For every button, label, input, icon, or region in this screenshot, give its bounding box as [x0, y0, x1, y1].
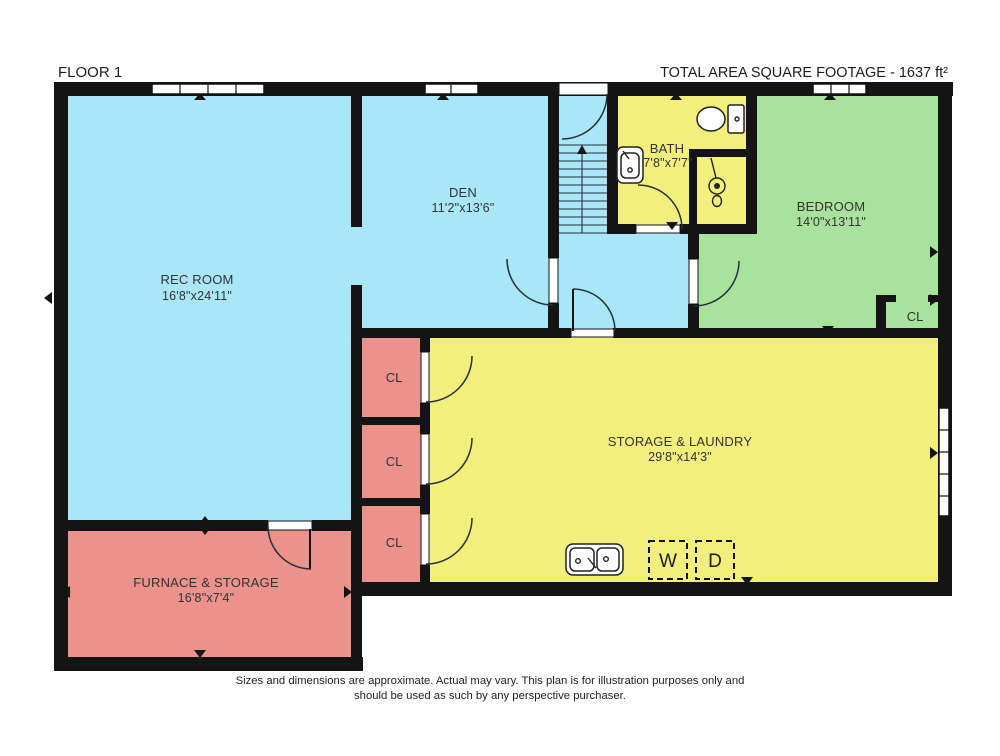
den-dims: 11'2"x13'6": [432, 201, 495, 215]
rec-room-area: [60, 92, 356, 524]
door-opening: [421, 434, 429, 485]
bedroom-dims: 14'0"x13'11": [796, 215, 866, 229]
furnace-storage-label: FURNACE & STORAGE: [133, 575, 279, 590]
den-label: DEN: [449, 185, 477, 200]
storage-laundry-label: STORAGE & LAUNDRY: [608, 434, 753, 449]
door-opening: [689, 259, 698, 304]
floor-label: FLOOR 1: [58, 64, 122, 81]
disclaimer-line-1: Sizes and dimensions are approximate. Ac…: [236, 675, 745, 687]
storage-laundry-dims: 29'8"x14'3": [648, 450, 712, 464]
door-opening: [549, 258, 558, 303]
bath-dims: 7'8"x7'7": [643, 156, 693, 170]
bedroom-closet-label: CL: [907, 309, 924, 324]
bath-sink-icon: [617, 147, 643, 183]
door-opening: [421, 352, 429, 403]
door-opening: [421, 514, 429, 565]
rec-room-dims: 16'8"x24'11": [162, 289, 232, 303]
disclaimer-line-2: should be used as such by any perspectiv…: [354, 690, 626, 702]
furnace-storage-dims: 16'8"x7'4": [178, 591, 235, 605]
window: [813, 84, 866, 94]
closet-2-label: CL: [386, 454, 403, 469]
window: [939, 408, 949, 516]
door-opening: [571, 329, 614, 337]
washer-label: W: [659, 551, 677, 572]
closet-3-label: CL: [386, 535, 403, 550]
rec-room-label: REC ROOM: [160, 272, 233, 287]
dryer-label: D: [708, 551, 722, 572]
hallway-area: [556, 233, 696, 335]
floor-plan-page: FLOOR 1 TOTAL AREA SQUARE FOOTAGE - 1637…: [0, 0, 1000, 756]
door-opening: [559, 83, 608, 95]
closet-1-label: CL: [386, 370, 403, 385]
total-area-label: TOTAL AREA SQUARE FOOTAGE - 1637 ft²: [660, 65, 948, 81]
bedroom-label: BEDROOM: [797, 199, 866, 214]
floor-plan: FLOOR 1 TOTAL AREA SQUARE FOOTAGE - 1637…: [0, 0, 1000, 756]
bath-label: BATH: [650, 141, 685, 156]
laundry-sink-icon: [566, 544, 623, 575]
door-opening: [268, 521, 312, 530]
